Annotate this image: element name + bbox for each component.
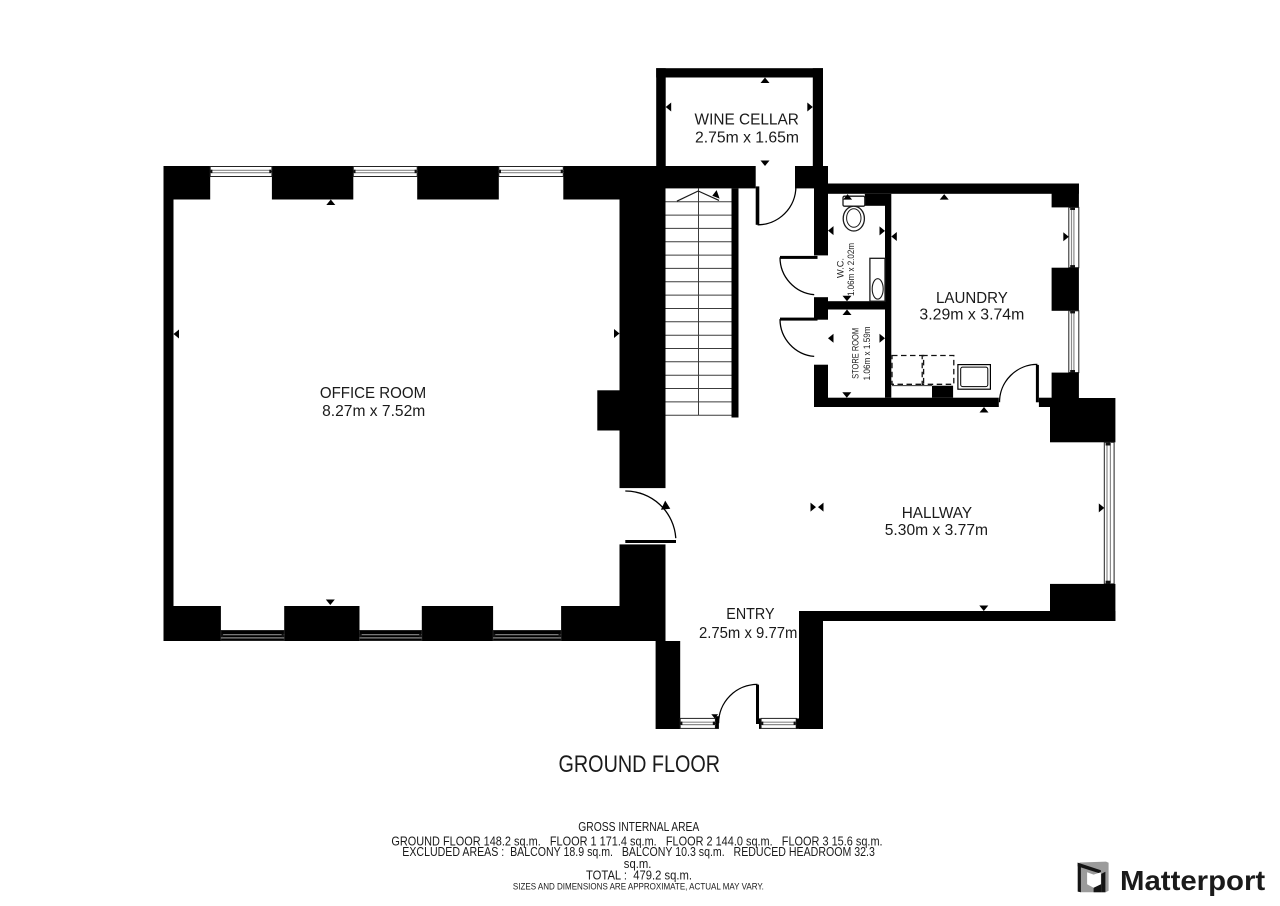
svg-text:5.30m x 3.77m: 5.30m x 3.77m: [885, 522, 988, 539]
svg-text:ENTRY: ENTRY: [726, 606, 774, 623]
svg-text:SIZES AND DIMENSIONS ARE APPRO: SIZES AND DIMENSIONS ARE APPROXIMATE, AC…: [513, 881, 764, 891]
svg-text:2.75m x 9.77m: 2.75m x 9.77m: [699, 625, 798, 642]
svg-text:1.06m x 2.02m: 1.06m x 2.02m: [846, 243, 857, 296]
svg-text:LAUNDRY: LAUNDRY: [936, 290, 1008, 307]
svg-text:1.06m x 1.59m: 1.06m x 1.59m: [862, 326, 873, 380]
svg-text:WINE CELLAR: WINE CELLAR: [695, 112, 799, 129]
svg-text:Matterport: Matterport: [1120, 865, 1265, 896]
svg-text:HALLWAY: HALLWAY: [902, 505, 972, 522]
svg-text:2.75m x 1.65m: 2.75m x 1.65m: [695, 130, 799, 147]
svg-text:OFFICE ROOM: OFFICE ROOM: [320, 385, 426, 402]
svg-text:8.27m x 7.52m: 8.27m x 7.52m: [322, 403, 425, 420]
svg-text:GROUND FLOOR: GROUND FLOOR: [559, 751, 721, 778]
svg-text:GROSS INTERNAL AREA: GROSS INTERNAL AREA: [578, 820, 700, 834]
svg-text:W.C.: W.C.: [835, 258, 846, 278]
svg-text:3.29m x 3.74m: 3.29m x 3.74m: [919, 306, 1024, 323]
svg-text:STORE ROOM: STORE ROOM: [851, 328, 862, 379]
